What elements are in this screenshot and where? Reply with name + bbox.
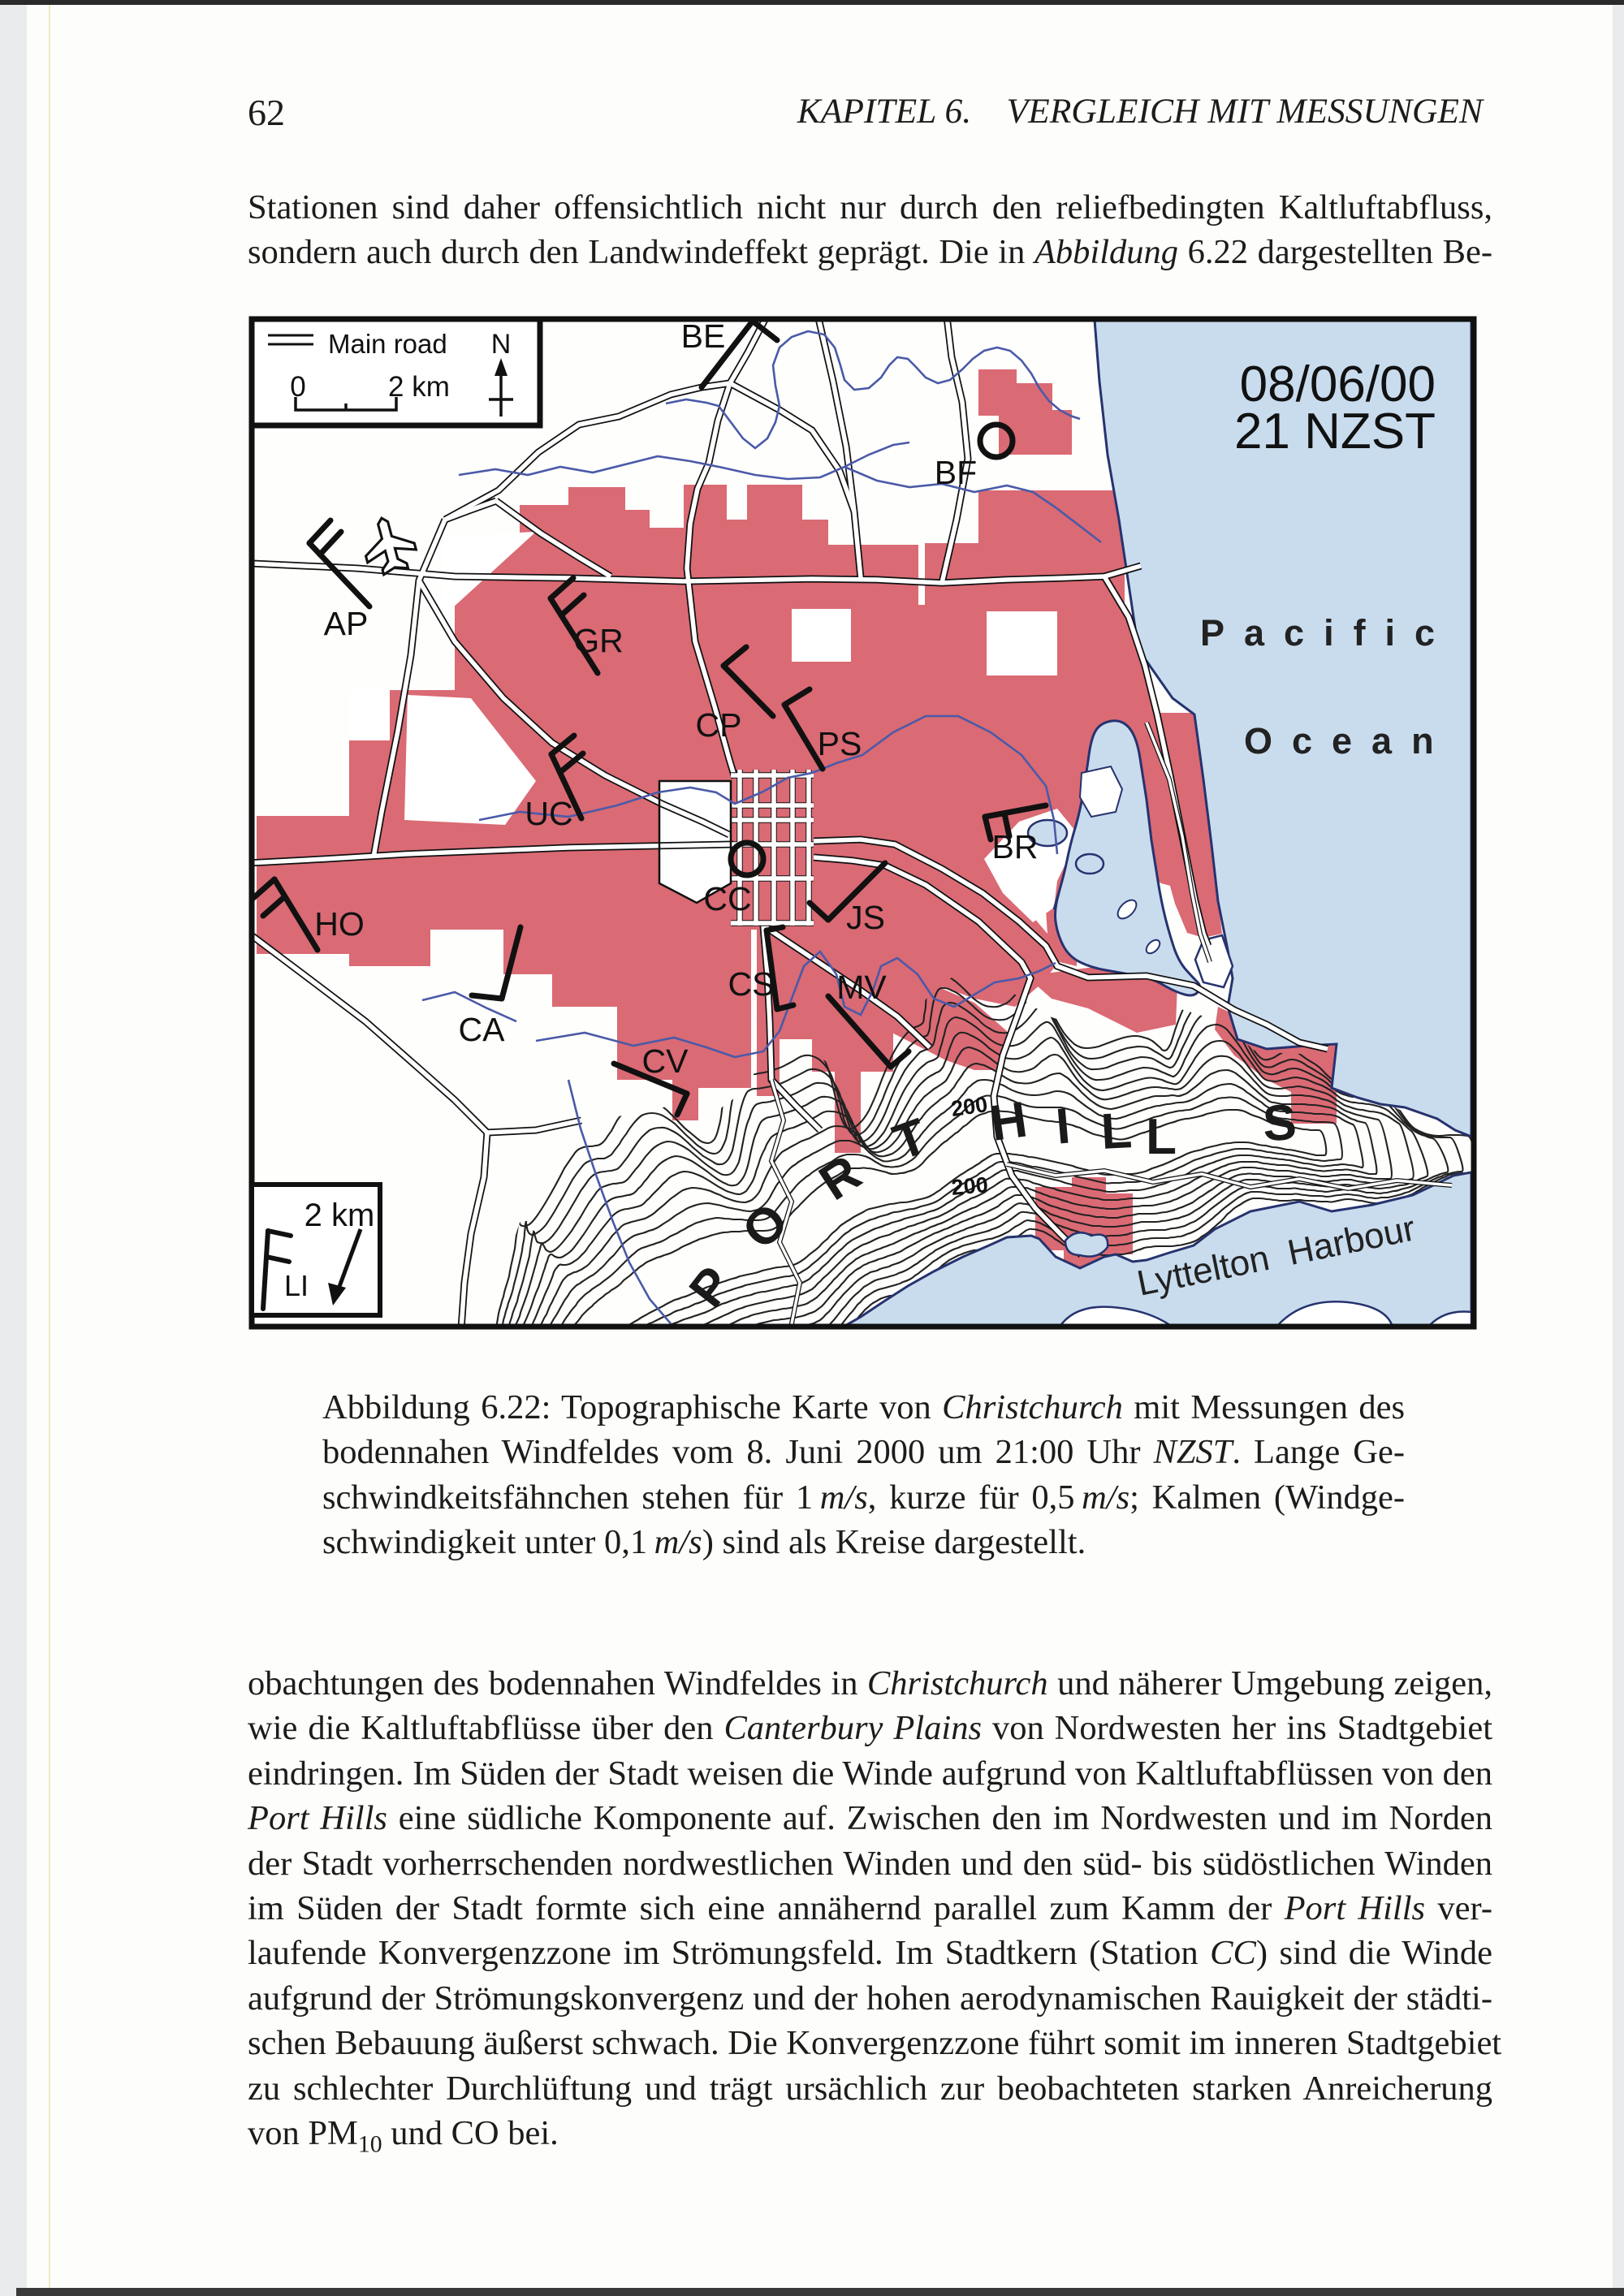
svg-text:JS: JS <box>846 899 885 936</box>
svg-text:Ocean: Ocean <box>1244 720 1453 762</box>
svg-text:S: S <box>1261 1094 1298 1152</box>
svg-text:Pacific: Pacific <box>1200 612 1454 654</box>
svg-text:HO: HO <box>314 905 365 943</box>
svg-text:21 NZST: 21 NZST <box>1234 404 1436 460</box>
svg-text:BE: BE <box>681 317 726 355</box>
svg-text:AP: AP <box>324 605 369 642</box>
svg-text:2 km: 2 km <box>304 1198 375 1233</box>
svg-text:CA: CA <box>459 1011 506 1048</box>
svg-text:CC: CC <box>703 880 751 917</box>
svg-text:H: H <box>987 1091 1030 1152</box>
svg-text:UC: UC <box>525 795 572 832</box>
svg-text:L: L <box>1146 1109 1177 1165</box>
svg-text:N: N <box>491 329 512 360</box>
svg-text:200: 200 <box>950 1172 989 1200</box>
svg-text:PS: PS <box>818 725 862 762</box>
svg-text:Main road: Main road <box>328 329 447 359</box>
svg-text:MV: MV <box>836 969 887 1006</box>
svg-text:CP: CP <box>696 706 742 744</box>
svg-text:CS: CS <box>728 965 775 1003</box>
svg-text:0: 0 <box>290 371 305 403</box>
svg-text:L: L <box>1099 1103 1133 1160</box>
svg-text:BR: BR <box>992 828 1039 865</box>
svg-text:CV: CV <box>642 1042 689 1080</box>
svg-text:LI: LI <box>284 1269 309 1302</box>
svg-text:200: 200 <box>949 1092 989 1121</box>
svg-text:BF: BF <box>935 454 977 491</box>
svg-text:GR: GR <box>573 622 624 659</box>
